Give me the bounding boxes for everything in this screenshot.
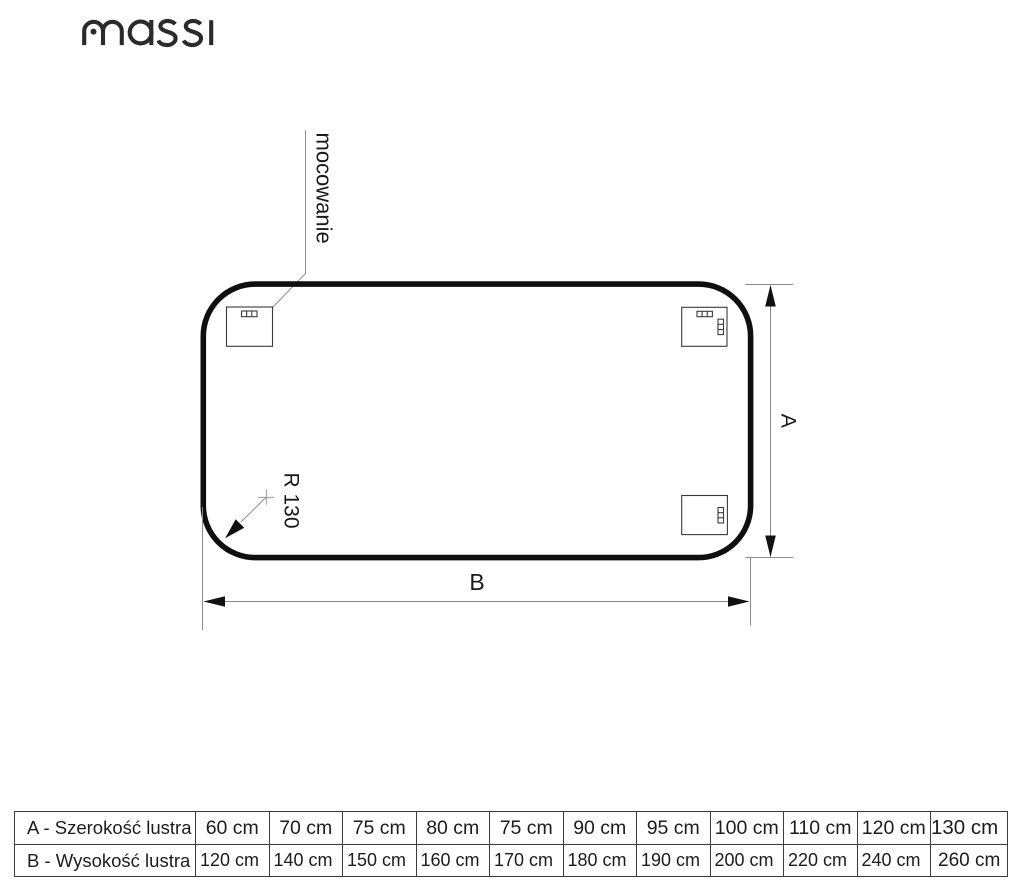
svg-text:B: B: [469, 569, 484, 595]
svg-text:mocowanie: mocowanie: [311, 133, 336, 244]
svg-text:A: A: [777, 414, 801, 429]
svg-text:R 130: R 130: [280, 473, 303, 529]
